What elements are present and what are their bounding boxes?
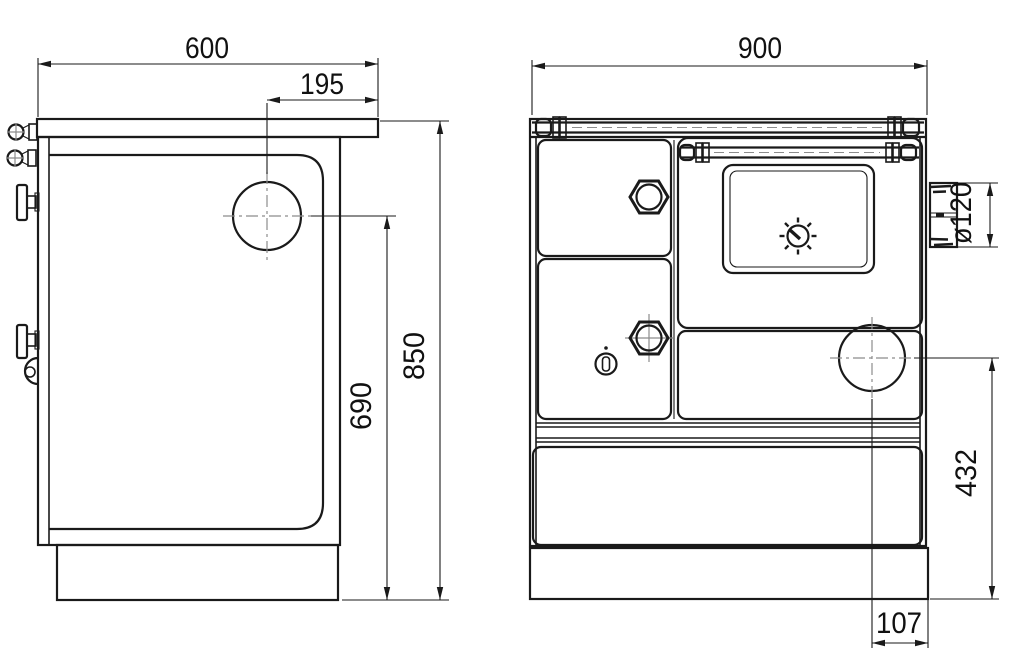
- rail-ferrule: [560, 117, 566, 138]
- arrowhead: [914, 63, 927, 69]
- side-knob-lower: [17, 325, 39, 358]
- side-worktop: [37, 119, 378, 137]
- hex-knob-upper: [630, 181, 668, 213]
- dim-label-107: 107: [876, 607, 922, 640]
- knob-profile: [17, 325, 27, 358]
- dim-label-900: 900: [738, 32, 782, 65]
- side-rail-end-handle: [6, 149, 36, 167]
- firebox-door-upper: [538, 140, 671, 256]
- oven-handle: [680, 143, 919, 162]
- trim-lines: [536, 423, 920, 442]
- dim-label-600: 600: [185, 32, 229, 65]
- arrowhead: [437, 587, 443, 600]
- rail-ferrule: [703, 143, 709, 162]
- arrowhead: [987, 183, 993, 196]
- dim-label-850: 850: [398, 332, 431, 380]
- thermometer-needle: [790, 230, 800, 239]
- arrowhead: [384, 216, 390, 229]
- selector-bar: [603, 357, 610, 371]
- arrowhead: [365, 97, 378, 103]
- side-view: 600 195 850 690: [6, 32, 449, 600]
- drawer-front: [533, 447, 922, 545]
- dim-label-195: 195: [300, 68, 344, 101]
- oven-door: [678, 138, 922, 328]
- arrowhead: [532, 63, 545, 69]
- bracket-hub: [25, 367, 35, 377]
- arrowhead: [872, 640, 885, 646]
- rail-ferrule: [696, 143, 702, 162]
- rail-ferrule: [888, 117, 894, 138]
- hex-knob-lower: [625, 314, 673, 362]
- arrowhead: [987, 234, 993, 247]
- flue-joint-tick: [936, 213, 944, 218]
- side-rail-end-top: [7, 123, 37, 141]
- rail-ferrule: [553, 117, 559, 138]
- arrowhead: [989, 358, 995, 371]
- dim-overall-height: 850: [342, 121, 449, 600]
- arrowhead: [38, 61, 51, 67]
- dim-label-diameter: ø120: [945, 182, 978, 244]
- dim-flue-diameter: ø120: [945, 182, 998, 247]
- ash-panel: [678, 331, 922, 419]
- rail-ferrule: [895, 117, 901, 138]
- dim-front-width: 900: [532, 32, 927, 115]
- rail-ferrule: [886, 143, 892, 162]
- arrowhead: [915, 640, 928, 646]
- selector-index-dot: [604, 346, 608, 350]
- selector-knob: [596, 346, 617, 374]
- dim-label-432: 432: [950, 449, 983, 497]
- side-panel: [49, 155, 323, 529]
- front-view: 900 ø120 432 107: [530, 32, 999, 648]
- bracket-arc: [25, 358, 38, 384]
- side-plinth: [57, 545, 338, 600]
- side-selector-bracket: [25, 358, 38, 384]
- rail-ferrule: [29, 124, 37, 140]
- rail-ferrule: [28, 150, 36, 166]
- arrowhead: [989, 586, 995, 599]
- technical-drawing-page: 600 195 850 690: [0, 0, 1019, 665]
- rail-ferrule: [893, 143, 899, 162]
- thermometer-icon: [780, 218, 817, 255]
- technical-drawing-canvas: 600 195 850 690: [0, 0, 1019, 665]
- arrowhead: [384, 587, 390, 600]
- dim-label-690: 690: [345, 382, 378, 430]
- hex-nut-center: [637, 185, 662, 210]
- side-knob-upper: [17, 185, 39, 220]
- arrowhead: [365, 61, 378, 67]
- towel-rail: [532, 117, 924, 138]
- firebox-door-lower: [538, 259, 671, 419]
- knob-profile: [17, 185, 27, 220]
- side-flue-circle: [233, 182, 301, 250]
- dim-flue-offset: 195: [267, 68, 378, 174]
- arrowhead: [437, 121, 443, 134]
- front-plinth: [530, 548, 928, 599]
- arrowhead: [267, 97, 280, 103]
